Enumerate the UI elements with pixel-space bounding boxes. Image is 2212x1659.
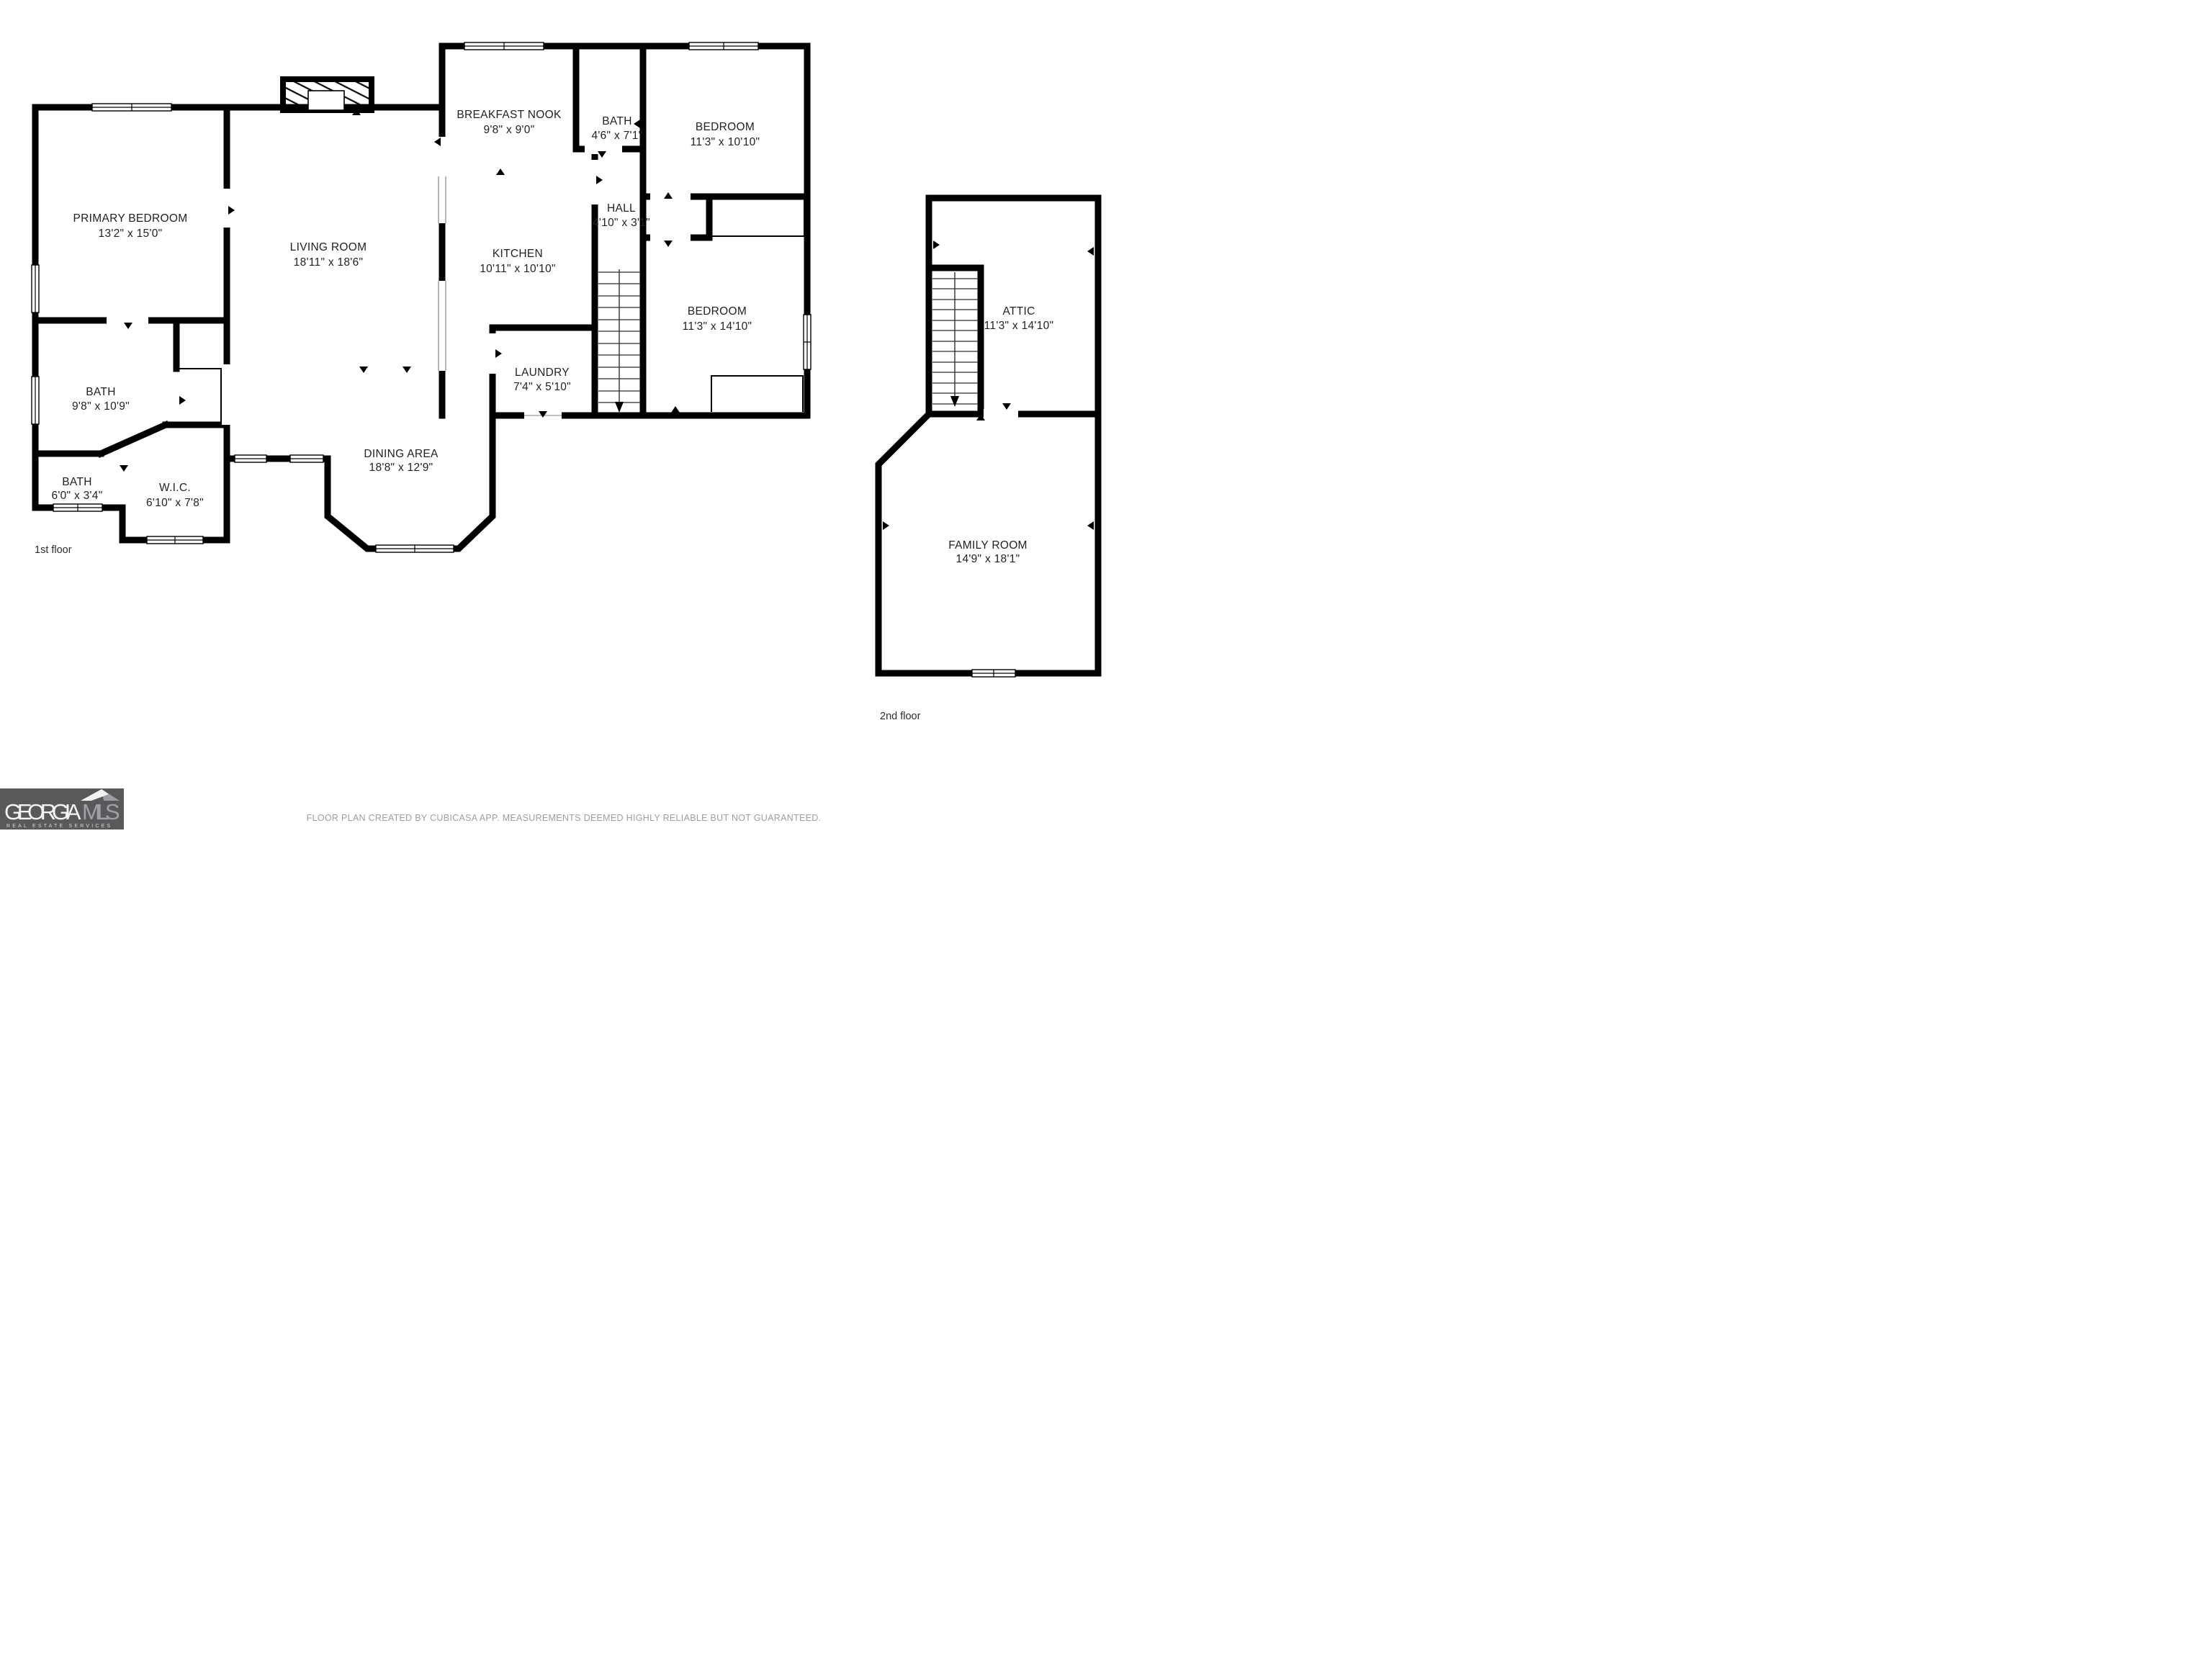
door-gap-vestibule	[222, 364, 232, 425]
bedroom-upper-closet-walls	[709, 199, 804, 236]
second-floor-outer-walls	[878, 198, 1098, 673]
logo-brand-text: GEORGIA	[4, 799, 81, 824]
door-swing-icon	[634, 120, 640, 128]
georgia-mls-logo: GEORGIA MLS REAL ESTATE SERVICES	[0, 788, 124, 829]
svg-text:LIVING ROOM: LIVING ROOM	[290, 241, 367, 253]
svg-text:BATH: BATH	[86, 386, 115, 398]
room-label-attic: ATTIC 11'3" x 14'10"	[984, 305, 1054, 332]
window	[376, 545, 454, 552]
floor-plan-page: PRIMARY BEDROOM 13'2" x 15'0" LIVING ROO…	[0, 0, 1106, 829]
second-floor-plan: ATTIC 11'3" x 14'10" FAMILY ROOM 14'9" x…	[878, 198, 1098, 722]
svg-text:18'11" x 18'6": 18'11" x 18'6"	[294, 256, 364, 269]
svg-text:FAMILY ROOM: FAMILY ROOM	[948, 539, 1028, 552]
svg-text:10'11" x 10'10": 10'11" x 10'10"	[480, 263, 556, 275]
svg-text:9'8" x 10'9": 9'8" x 10'9"	[72, 400, 130, 413]
svg-text:LAUNDRY: LAUNDRY	[515, 367, 570, 379]
svg-text:KITCHEN: KITCHEN	[493, 248, 543, 260]
svg-text:11'3" x 14'10": 11'3" x 14'10"	[683, 320, 752, 333]
room-label-kitchen: KITCHEN 10'11" x 10'10"	[480, 248, 556, 275]
svg-text:4'6" x 7'1": 4'6" x 7'1"	[591, 130, 642, 142]
svg-text:BEDROOM: BEDROOM	[688, 305, 747, 318]
window	[235, 455, 266, 462]
svg-text:HALL: HALL	[607, 202, 636, 215]
svg-text:18'8" x 12'9": 18'8" x 12'9"	[369, 462, 433, 474]
door-swing-icon	[664, 240, 673, 247]
svg-text:9'8" x 9'0": 9'8" x 9'0"	[483, 124, 534, 136]
staircase-second-floor	[932, 272, 978, 407]
svg-text:13'2" x 15'0": 13'2" x 15'0"	[99, 228, 163, 240]
room-label-breakfast-nook: BREAKFAST NOOK 9'8" x 9'0"	[457, 109, 562, 136]
disclaimer-text: FLOOR PLAN CREATED BY CUBICASA APP. MEAS…	[307, 813, 822, 823]
window	[972, 670, 1015, 677]
svg-text:11'3" x 14'10": 11'3" x 14'10"	[984, 320, 1054, 332]
floor-plan-canvas: PRIMARY BEDROOM 13'2" x 15'0" LIVING ROO…	[0, 0, 1106, 829]
logo-brand-suffix-text: MLS	[82, 799, 120, 824]
bedroom-right-closet-walls	[711, 376, 803, 412]
svg-text:6'0" x 3'4": 6'0" x 3'4"	[51, 490, 102, 502]
door-swing-icon	[598, 151, 606, 158]
fireplace-icon	[283, 79, 372, 110]
logo-tagline-text: REAL ESTATE SERVICES	[6, 824, 112, 829]
window	[53, 504, 102, 511]
room-label-dining-area: DINING AREA 18'8" x 12'9"	[364, 448, 439, 474]
door-swing-icon	[120, 465, 128, 472]
door-swing-icon	[1087, 247, 1094, 256]
door-swing-icon	[671, 406, 680, 413]
svg-text:7'4" x 5'10": 7'4" x 5'10"	[513, 381, 571, 393]
door-swing-icon	[883, 521, 889, 530]
svg-text:BATH: BATH	[62, 476, 91, 488]
door-swing-icon	[495, 349, 502, 358]
door-swing-icon	[124, 323, 132, 329]
stairs-down-arrow	[615, 402, 624, 413]
vestibule-closet-walls	[176, 369, 221, 425]
room-label-laundry: LAUNDRY 7'4" x 5'10"	[513, 367, 571, 393]
svg-text:BATH: BATH	[602, 115, 631, 127]
room-label-living-room: LIVING ROOM 18'11" x 18'6"	[290, 241, 367, 269]
first-floor-label: 1st floor	[35, 544, 72, 556]
svg-text:11'3" x 10'10": 11'3" x 10'10"	[691, 136, 760, 148]
svg-text:DINING AREA: DINING AREA	[364, 448, 439, 460]
room-label-bedroom-right: BEDROOM 11'3" x 14'10"	[683, 305, 752, 333]
door-swing-icon	[1002, 403, 1011, 410]
second-floor-label: 2nd floor	[880, 711, 921, 722]
door-swing-icon	[403, 367, 411, 373]
window	[92, 104, 171, 111]
svg-text:W.I.C.: W.I.C.	[159, 482, 191, 494]
svg-text:PRIMARY BEDROOM: PRIMARY BEDROOM	[73, 212, 188, 225]
cased-opening	[438, 176, 446, 223]
svg-text:BEDROOM: BEDROOM	[696, 121, 755, 133]
door-swing-icon	[1087, 521, 1094, 530]
window	[32, 265, 39, 313]
window	[464, 42, 544, 50]
stairs-down-arrow	[950, 396, 959, 407]
svg-text:4'10" x 3'1": 4'10" x 3'1"	[593, 217, 650, 229]
window	[689, 42, 758, 50]
door-swing-icon	[359, 367, 368, 373]
window	[804, 315, 811, 369]
staircase-first-floor	[598, 269, 640, 413]
door-swing-icon	[933, 240, 940, 249]
window	[290, 455, 323, 462]
door-gap-attic	[984, 409, 1018, 419]
room-label-bath-main: BATH 9'8" x 10'9"	[72, 386, 130, 413]
svg-text:ATTIC: ATTIC	[1002, 305, 1035, 318]
cased-opening	[438, 281, 446, 328]
room-label-bath-small: BATH 6'0" x 3'4"	[51, 476, 102, 502]
room-label-bath-upper: BATH 4'6" x 7'1"	[591, 115, 642, 142]
svg-text:BREAKFAST NOOK: BREAKFAST NOOK	[457, 109, 562, 121]
door-swing-icon	[179, 396, 186, 405]
window	[147, 536, 203, 544]
room-label-family-room: FAMILY ROOM 14'9" x 18'1"	[948, 539, 1028, 565]
svg-text:6'10" x 7'8": 6'10" x 7'8"	[146, 497, 204, 509]
room-label-wic: W.I.C. 6'10" x 7'8"	[146, 482, 204, 509]
cased-opening	[438, 328, 446, 371]
door-swing-icon	[496, 168, 505, 175]
room-label-bedroom-upper: BEDROOM 11'3" x 10'10"	[691, 121, 760, 148]
first-floor-plan: PRIMARY BEDROOM 13'2" x 15'0" LIVING ROO…	[32, 42, 811, 556]
svg-text:14'9" x 18'1": 14'9" x 18'1"	[956, 553, 1020, 565]
room-label-primary-bedroom: PRIMARY BEDROOM 13'2" x 15'0"	[73, 212, 188, 240]
window	[32, 377, 39, 424]
